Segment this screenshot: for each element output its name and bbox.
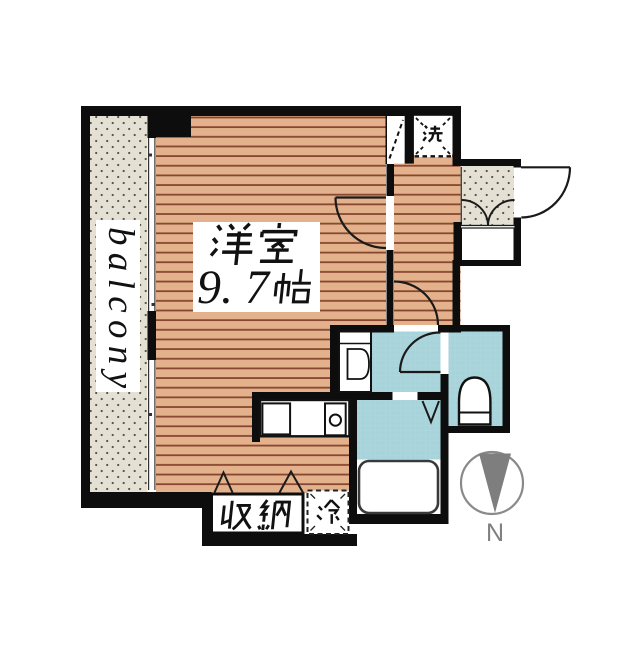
svg-text:7: 7 <box>245 261 271 314</box>
svg-text:9.: 9. <box>197 261 233 314</box>
svg-text:N: N <box>486 519 504 547</box>
